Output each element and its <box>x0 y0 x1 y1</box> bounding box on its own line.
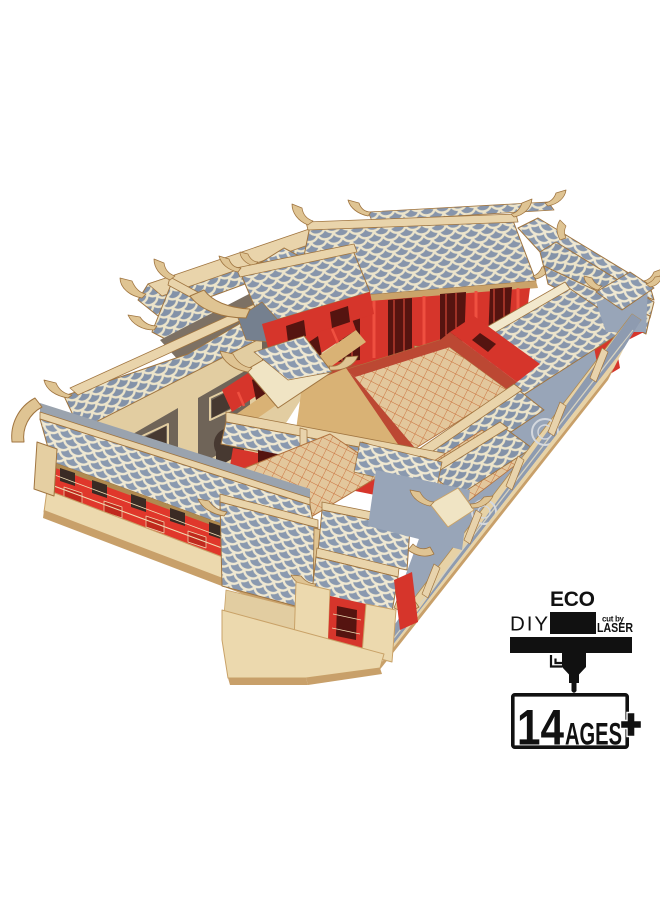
svg-text:LASER: LASER <box>597 620 633 635</box>
svg-text:ECO: ECO <box>550 588 595 611</box>
svg-text:14: 14 <box>517 700 564 756</box>
svg-text:DIY: DIY <box>510 613 548 636</box>
svg-text:AGES: AGES <box>565 716 622 752</box>
